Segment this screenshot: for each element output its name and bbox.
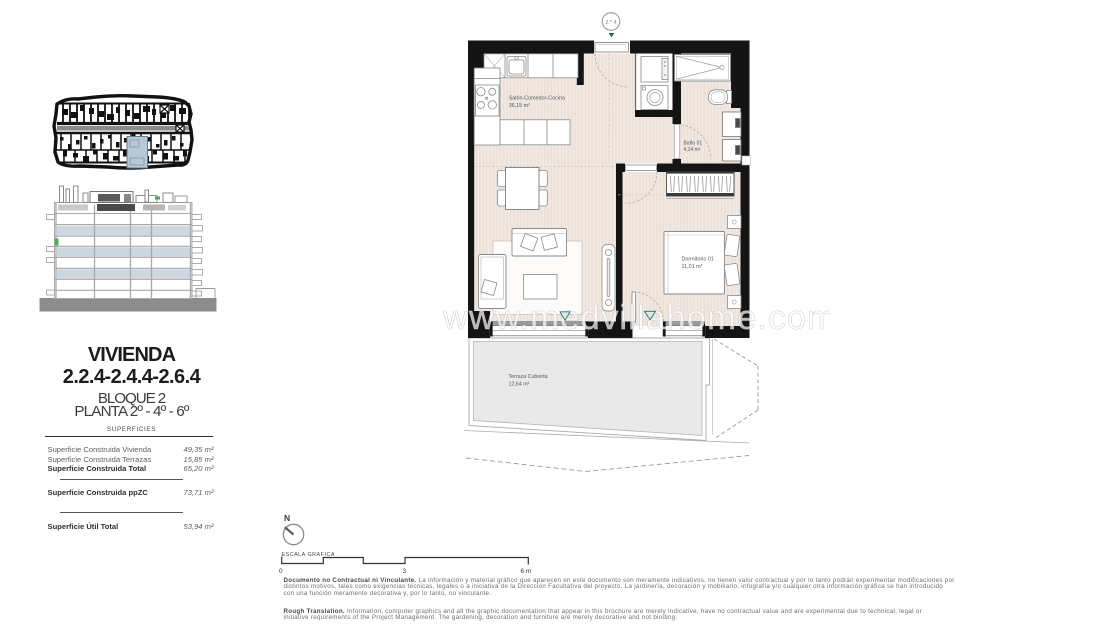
svg-text:6 m: 6 m: [521, 568, 532, 575]
svg-text:Baño 01: Baño 01: [684, 141, 703, 147]
svg-text:www.medvillahome.com: www.medvillahome.com: [442, 299, 830, 337]
svg-text:3: 3: [403, 568, 407, 575]
svg-text:2.*.4: 2.*.4: [605, 20, 617, 26]
svg-text:N: N: [284, 513, 290, 523]
svg-text:4,14 m²: 4,14 m²: [684, 147, 701, 153]
svg-text:Salón-Comedor-Cocina: Salón-Comedor-Cocina: [509, 96, 565, 102]
svg-text:36,15 m²: 36,15 m²: [509, 103, 530, 109]
svg-text:Terraza Cubierta: Terraza Cubierta: [509, 374, 548, 380]
svg-text:0: 0: [279, 568, 283, 575]
svg-text:11,01 m²: 11,01 m²: [682, 264, 703, 270]
svg-text:Dormitorio 01: Dormitorio 01: [682, 257, 714, 263]
svg-text:12,64 m²: 12,64 m²: [509, 382, 530, 388]
